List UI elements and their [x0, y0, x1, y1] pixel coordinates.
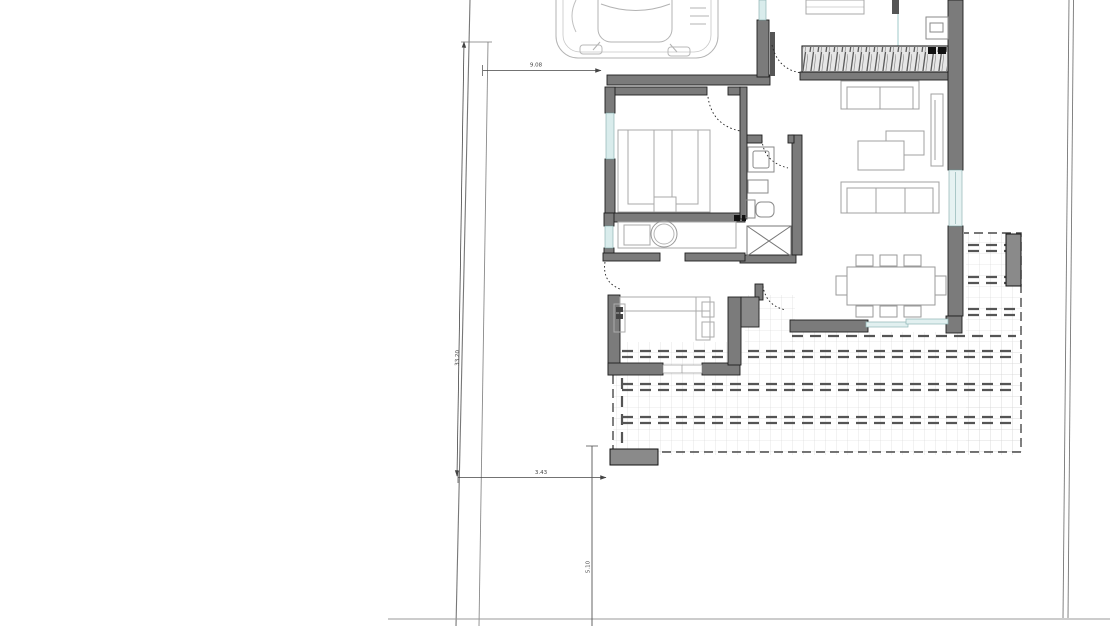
dimension-top-width: 9.08 [483, 63, 602, 77]
wall-east-lower [948, 226, 963, 316]
dimension-bottom-offset: 3.43 [458, 470, 606, 483]
wall-laundry-south-a [603, 253, 660, 261]
wall-bedroom2-south [800, 72, 948, 80]
wall-bedroom1-west-a [605, 87, 615, 113]
door-arc-laundry-exterior [605, 262, 620, 289]
car-top-view [556, 0, 718, 58]
window-bedroom1-west [606, 113, 614, 159]
wall-end-caps [734, 215, 746, 221]
wall-east-upper [948, 0, 963, 170]
wall-bath-west [740, 87, 747, 219]
window-kitchen-south [663, 365, 702, 373]
window-laundry-west [605, 226, 613, 248]
bedroom2-bed [806, 0, 864, 14]
wall-bath-north-b [788, 135, 794, 143]
wardrobe [802, 46, 948, 72]
wall-bedroom1-north-stub [728, 87, 740, 95]
bathroom-fixtures [746, 147, 791, 256]
dimension-south-label: 5.10 [586, 560, 592, 573]
wall-kitchen-south-a [608, 363, 663, 375]
floor-plan: 33.20 9.08 3.43 5.10 [0, 0, 1110, 626]
living-room-furniture [841, 81, 943, 213]
kitchen-appliance-2 [702, 322, 714, 337]
laundry-sink [651, 221, 677, 247]
wall-laundry-west-a [604, 213, 614, 226]
toilet [746, 200, 774, 218]
dimension-left-boundary: 33.20 [455, 42, 464, 476]
door-arc-entry [772, 45, 802, 73]
sofa-2-seat [841, 81, 919, 109]
wall-bedroom1-south [605, 213, 745, 222]
dimension-bottom-label: 3.43 [535, 470, 548, 476]
bathroom-sink [748, 147, 774, 172]
wall-living-west [792, 135, 802, 255]
property-boundary-right [1063, 0, 1074, 618]
kitchen-counter [614, 297, 714, 340]
wall-kitchen-east [728, 297, 741, 365]
door-arc-bedroom1 [708, 97, 740, 131]
terrace-pillar-southwest [610, 449, 658, 465]
wall-laundry-south-b [685, 253, 745, 261]
wall-bedroom1-north [607, 87, 707, 95]
dimension-left-label: 33.20 [455, 349, 462, 365]
property-boundary-left [456, 0, 492, 626]
ensuite-sink [926, 17, 948, 39]
kitchen-island-block [741, 297, 759, 327]
dimension-south-setback: 5.10 [586, 446, 599, 626]
dining-table [847, 267, 935, 305]
wall-garage-east [757, 20, 769, 77]
wall-bath-north-a [747, 135, 762, 143]
laundry-counter [618, 221, 736, 248]
wall-bedroom1-west-b [605, 159, 615, 213]
bathroom-shelf [748, 180, 768, 193]
dining-set [836, 255, 946, 317]
door-arc-bathroom [762, 140, 788, 168]
bedroom1-double-bed [618, 130, 710, 212]
wall-pillar-southeast [946, 316, 962, 333]
tv-unit [931, 94, 943, 166]
door-leaf-bedroom2 [770, 32, 775, 76]
terrace-pillar-east [1006, 234, 1021, 286]
wall-dining-south [790, 320, 868, 332]
window-garage-east [759, 0, 766, 20]
coffee-tables [858, 131, 924, 170]
wall-garage-south [607, 75, 770, 85]
sofa-3-seat [841, 182, 939, 213]
dimension-top-label: 9.08 [530, 63, 543, 69]
kitchen-appliance-1 [702, 302, 714, 317]
sliding-door-dining-south [866, 319, 948, 327]
door-leaf-bedroom2-top [892, 0, 899, 14]
shower [747, 226, 791, 256]
